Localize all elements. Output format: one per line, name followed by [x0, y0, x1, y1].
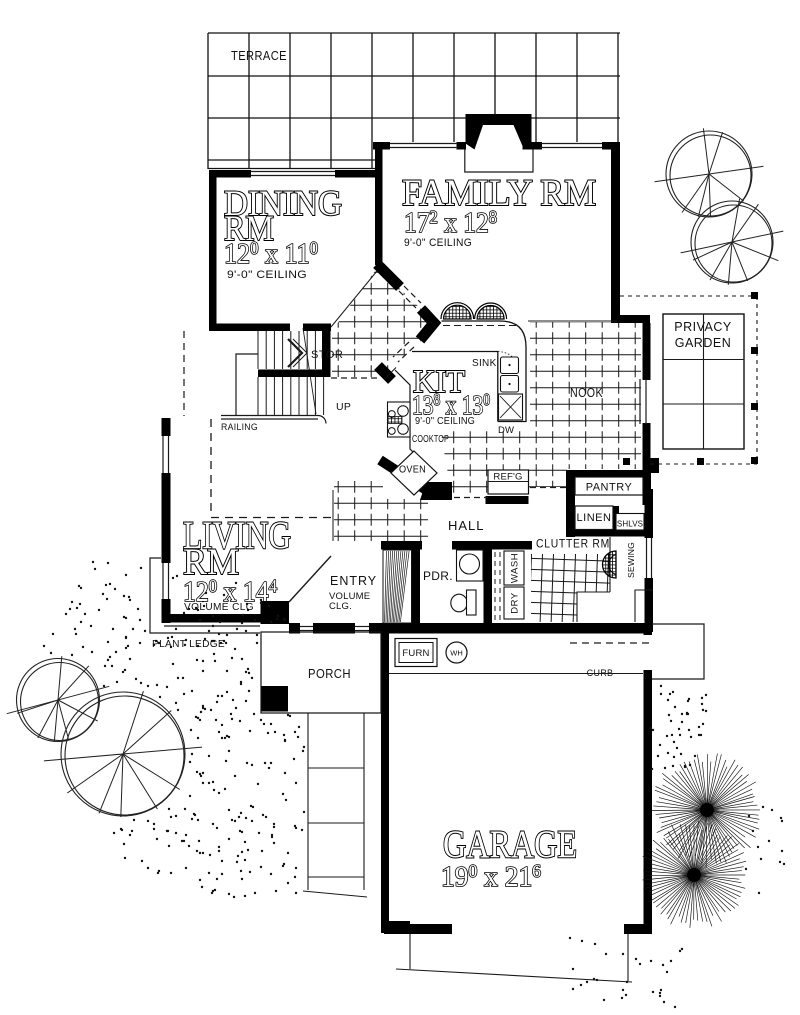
svg-text:ENTRY: ENTRY [330, 574, 377, 588]
svg-text:9'-0" CEILING: 9'-0" CEILING [415, 415, 475, 427]
svg-text:PDR.: PDR. [423, 569, 453, 583]
svg-text:SEWING: SEWING [627, 542, 636, 578]
svg-text:REF'G: REF'G [493, 472, 522, 483]
svg-text:NOOK: NOOK [570, 385, 603, 400]
svg-text:STOR: STOR [311, 349, 343, 361]
svg-text:UP: UP [336, 401, 351, 413]
svg-text:DW: DW [498, 425, 514, 436]
svg-text:PORCH: PORCH [308, 666, 351, 681]
svg-text:COOKTOP: COOKTOP [412, 434, 449, 445]
svg-text:OVEN: OVEN [399, 464, 426, 476]
svg-text:HALL: HALL [448, 518, 485, 533]
svg-text:120 x 110: 120 x 110 [224, 238, 318, 270]
svg-text:VOLUME CLG: VOLUME CLG [184, 601, 254, 613]
svg-text:GARDEN: GARDEN [675, 336, 731, 350]
svg-text:CLG.: CLG. [329, 601, 352, 612]
svg-text:PLANT LEDGE: PLANT LEDGE [152, 638, 225, 650]
svg-text:9'-0" CEILING: 9'-0" CEILING [227, 269, 307, 281]
svg-text:PRIVACY: PRIVACY [674, 320, 732, 334]
svg-text:CLUTTER RM: CLUTTER RM [536, 539, 610, 551]
svg-text:GARAGE: GARAGE [443, 823, 577, 866]
svg-text:SINK: SINK [472, 358, 497, 369]
svg-text:PANTRY: PANTRY [586, 482, 633, 494]
svg-text:WASH: WASH [510, 553, 521, 583]
svg-text:FURN: FURN [402, 648, 429, 659]
svg-text:TERRACE: TERRACE [231, 48, 287, 63]
svg-text:SHLVS: SHLVS [617, 520, 643, 529]
svg-text:190 x 216: 190 x 216 [441, 861, 541, 893]
svg-text:172 x 128: 172 x 128 [404, 207, 497, 239]
svg-text:DRY: DRY [510, 592, 521, 614]
svg-text:CURB: CURB [587, 668, 614, 678]
svg-text:LINEN: LINEN [577, 512, 612, 524]
svg-text:9'-0" CEILING: 9'-0" CEILING [404, 237, 472, 249]
svg-text:RAILING: RAILING [221, 422, 258, 432]
svg-text:WH: WH [450, 649, 463, 658]
